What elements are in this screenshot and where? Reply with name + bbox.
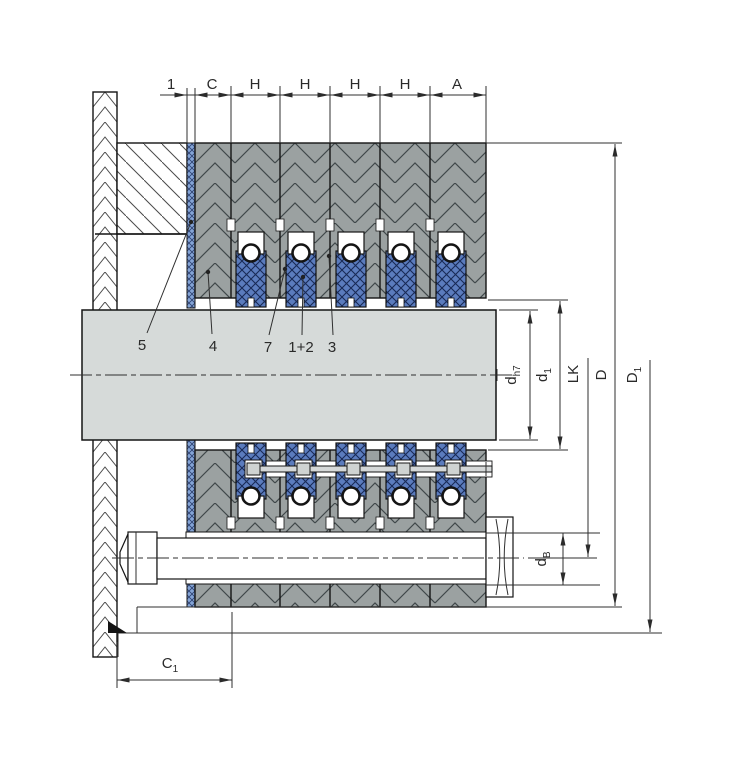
- flange-edges: [108, 607, 662, 657]
- dim-label-flange-diameter: D1: [624, 366, 644, 383]
- top-dim-label-a: A: [452, 76, 462, 93]
- dim-label-inner-diameter: d1: [534, 368, 554, 382]
- top-dim-label-h2: H: [300, 76, 311, 93]
- part-label-1-2: 1+2: [288, 339, 313, 356]
- top-dim-label-c: C: [207, 76, 218, 93]
- part-label-7: 7: [264, 339, 272, 356]
- dim-label-outer-diameter: D: [593, 369, 610, 380]
- dim-label-depth: C1: [162, 655, 179, 675]
- leader-dot-3: [327, 254, 331, 258]
- leader-dot-5: [189, 220, 193, 224]
- part-label-5: 5: [138, 337, 146, 354]
- shaft: [70, 310, 512, 440]
- technical-drawing: 1 C H H H H A 5 4 7 1+2 3 dh7 d1 LK D D1…: [0, 0, 731, 768]
- packing-chamber: [236, 443, 266, 518]
- packing-chamber: [336, 232, 366, 307]
- packing-chamber: [436, 232, 466, 307]
- packing-chamber: [236, 232, 266, 307]
- packing-chamber: [286, 232, 316, 307]
- mounting-gasket-upper: [187, 143, 195, 308]
- drawing-page: 1 C H H H H A 5 4 7 1+2 3 dh7 d1 LK D D1…: [0, 0, 731, 768]
- top-dim-label-h4: H: [400, 76, 411, 93]
- packing-chamber: [386, 443, 416, 518]
- leader-dot-7: [283, 267, 287, 271]
- dim-label-bolt-circle: LK: [565, 365, 582, 383]
- packing-chamber: [286, 443, 316, 518]
- leader-dot-4: [206, 270, 210, 274]
- top-dim-label-h3: H: [350, 76, 361, 93]
- packing-chamber: [386, 232, 416, 307]
- c1-extension-lines: [117, 612, 232, 688]
- part-label-3: 3: [328, 339, 336, 356]
- packing-chamber: [436, 443, 466, 518]
- top-dim-label-h1: H: [250, 76, 261, 93]
- wall-flange-block: [117, 143, 187, 234]
- top-dim-label-1: 1: [167, 76, 175, 93]
- dim-label-bolt-diameter: dB: [533, 551, 553, 566]
- leader-dot-1-2: [301, 275, 305, 279]
- packing-chamber: [336, 443, 366, 518]
- part-label-4: 4: [209, 338, 217, 355]
